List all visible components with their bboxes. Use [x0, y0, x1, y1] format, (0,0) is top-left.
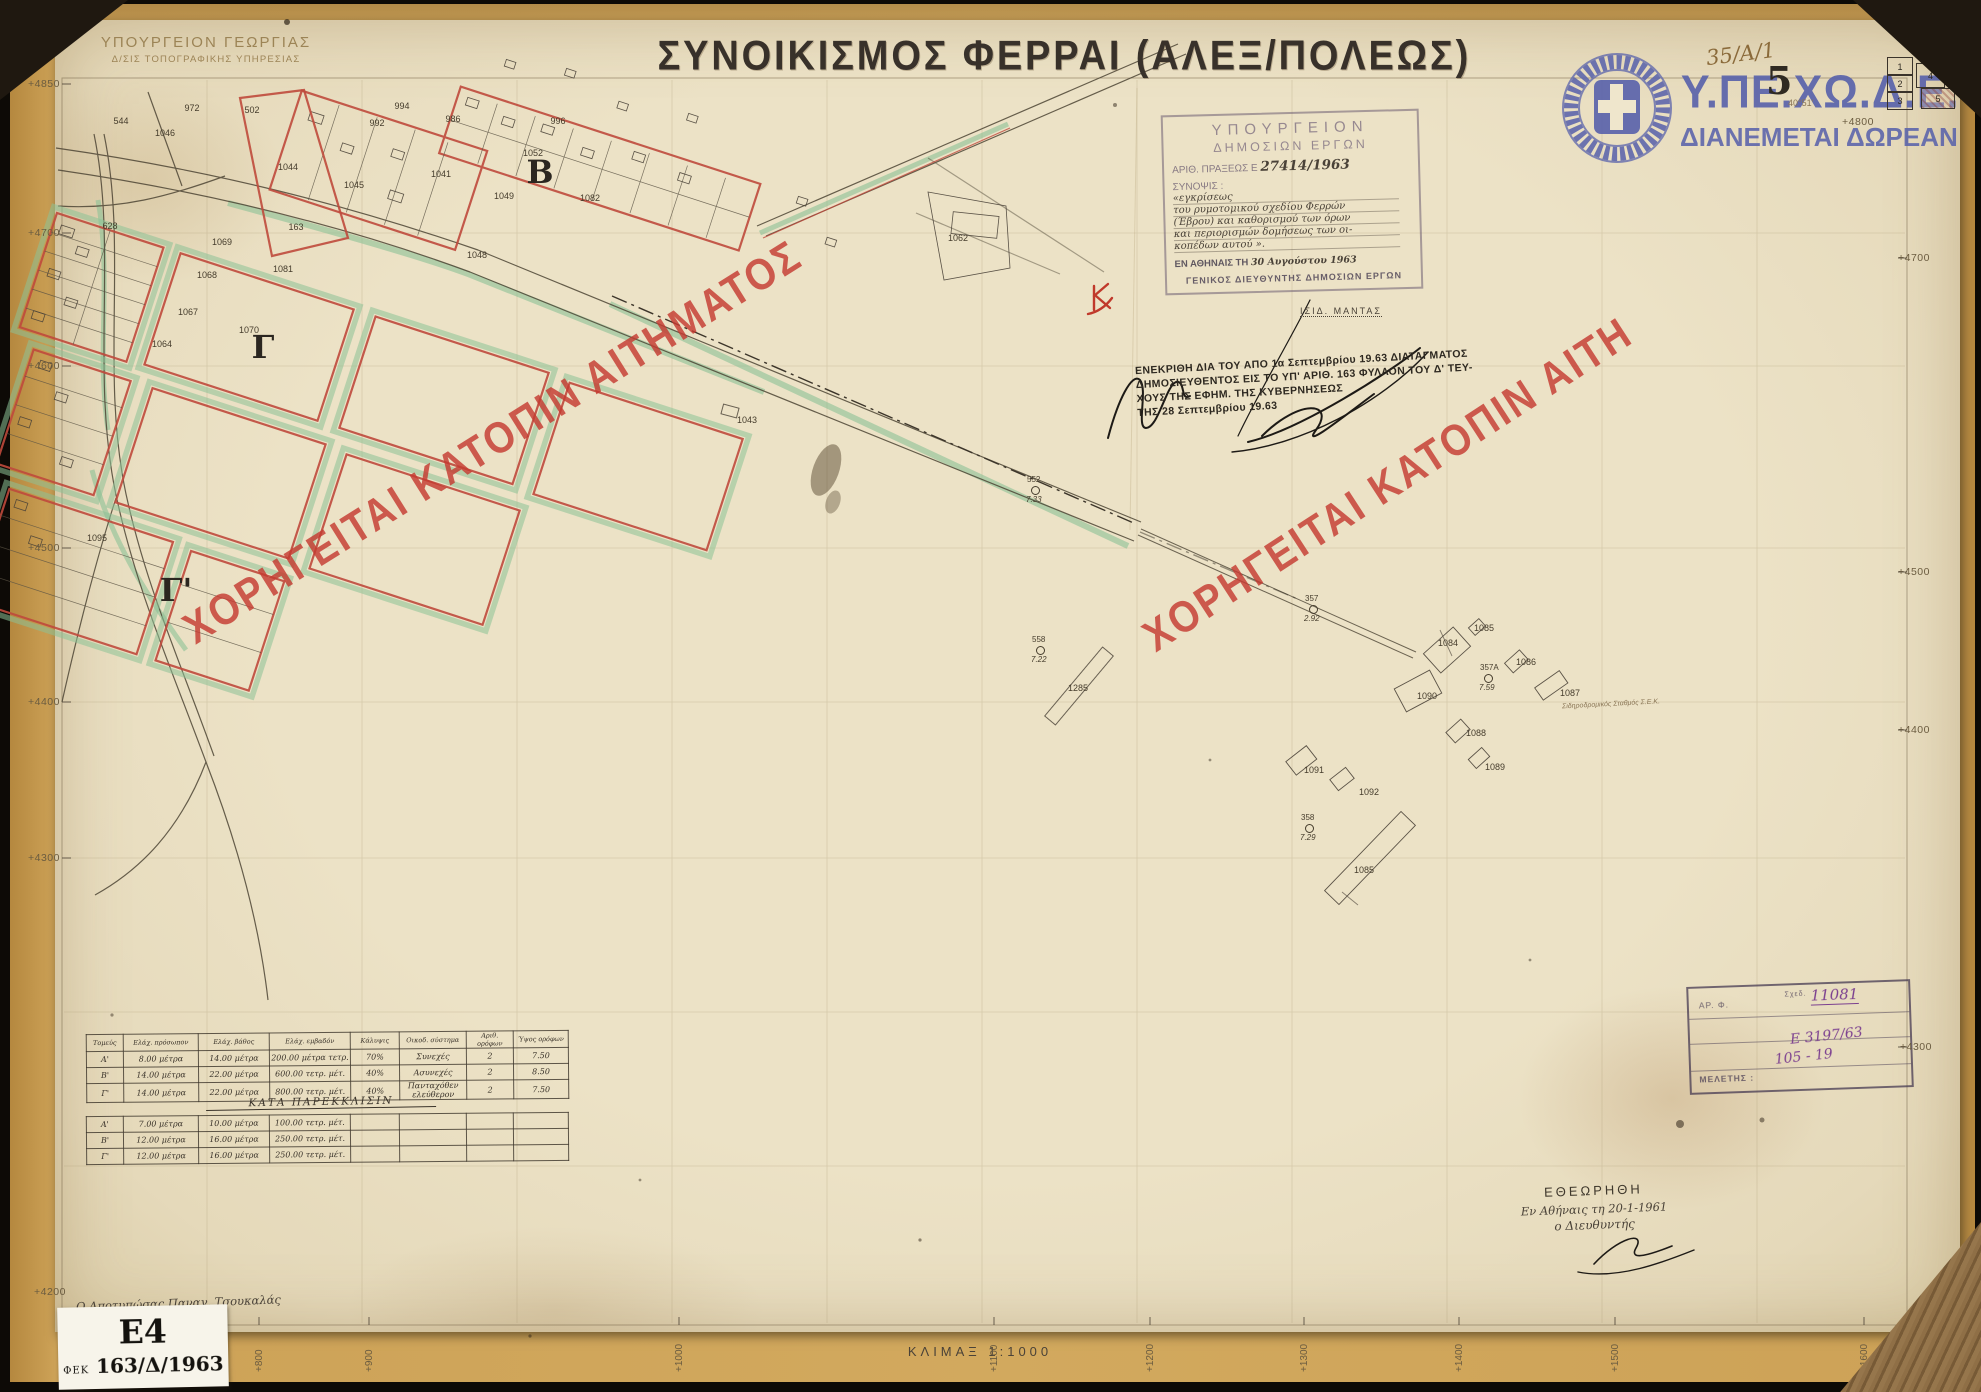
table-cell — [467, 1145, 514, 1161]
table-header-cell: Ελάχ. εμβαδόν — [269, 1032, 350, 1050]
table-cell: 22.00 μέτρα — [198, 1066, 269, 1083]
table-cell: 14.00 μέτρα — [124, 1083, 199, 1103]
control-point-number: 552 — [1027, 475, 1040, 484]
parcel-number: 1082 — [580, 193, 600, 203]
table-header-cell: Ελάχ. πρόσωπον — [123, 1034, 198, 1052]
latitude-note: 40°51' — [1788, 98, 1813, 108]
parcel-number: 1081 — [273, 264, 293, 274]
registry-stamp: ΑΡ. Φ. Σχεδ. ΜΕΛΕΤΗΣ : 11081 Ε 3197/63 1… — [1686, 979, 1914, 1095]
table-cell: 7.50 — [514, 1079, 569, 1098]
parcel-number: 1046 — [155, 128, 175, 138]
registry-pages: 105 - 19 — [1774, 1046, 1834, 1068]
table-cell — [400, 1145, 467, 1162]
table-cell: 70% — [350, 1049, 399, 1065]
table-header-cell: Τομεύς — [86, 1034, 123, 1051]
table-cell: 600.00 τετρ. μέτ. — [269, 1065, 350, 1082]
table-cell: 7.50 — [513, 1047, 568, 1063]
map-scale: ΚΛΙΜΑΞ 1:1000 — [800, 1344, 1160, 1359]
table-cell — [514, 1144, 569, 1160]
registry-study-label: ΜΕΛΕΤΗΣ : — [1699, 1073, 1754, 1085]
table-header-cell: Ύψος ορόφων — [513, 1030, 568, 1047]
parcel-number: 1043 — [737, 415, 757, 425]
parcel-number: 1069 — [212, 237, 232, 247]
control-point-number: 358 — [1301, 813, 1314, 822]
table-cell — [351, 1146, 400, 1162]
table-cell — [513, 1112, 568, 1128]
parcel-number: 1091 — [1304, 765, 1324, 775]
control-point-number: 357Α — [1480, 663, 1499, 672]
parcel-number: 628 — [102, 221, 117, 231]
index-cell-5-current: 5 — [1921, 88, 1955, 109]
table-cell — [466, 1129, 513, 1145]
table-header-cell: Αριθ. ορόφων — [466, 1031, 513, 1048]
control-point-elevation: 2.92 — [1304, 614, 1320, 623]
block-letter: Γ' — [160, 571, 193, 609]
grid-label: +4700 — [28, 227, 60, 239]
table-cell: 12.00 μέτρα — [123, 1132, 198, 1149]
fek-number-row: ΦΕΚ 163/Δ/1963 — [58, 1351, 228, 1379]
table-cell — [350, 1114, 399, 1130]
control-point-marker — [1031, 486, 1040, 495]
signatory-name: ΙΣΙΔ. ΜΑΝΤΑΣ — [1300, 306, 1382, 317]
table-cell: 16.00 μέτρα — [198, 1131, 269, 1148]
table-cell: 8.50 — [513, 1063, 568, 1079]
grid-label: +4500 — [28, 542, 60, 554]
control-point-marker — [1036, 646, 1045, 655]
table-cell: 12.00 μέτρα — [124, 1148, 199, 1165]
index-cell-3: 3 — [1887, 91, 1913, 110]
grid-label: +4500 — [1898, 566, 1930, 578]
stamp-act-number: 27414/1963 — [1260, 156, 1350, 174]
scanned-map-photo: ΥΠΟΥΡΓΕΙΟΝ ΓΕΩΡΓΙΑΣ Δ/ΣΙΣ ΤΟΠΟΓΡΑΦΙΚΗΣ Υ… — [0, 0, 1981, 1392]
table-cell: 8.00 μέτρα — [123, 1051, 198, 1068]
review-block: ΕΘΕΩΡΗΘΗ Εν Αθήναις τη 20-1-1961 ο Διευθ… — [1493, 1180, 1695, 1236]
grid-label: +4600 — [28, 360, 60, 372]
control-point-marker — [1305, 824, 1314, 833]
table-cell — [399, 1113, 466, 1130]
grid-label: +1100 — [989, 1345, 1000, 1372]
table-cell: 7.00 μέτρα — [123, 1116, 198, 1133]
grid-label: +4700 — [1898, 252, 1930, 264]
fek-number: 163/Δ/1963 — [96, 1351, 224, 1378]
building-terms-table: ΤομεύςΕλάχ. πρόσωπονΕλάχ. βάθοςΕλάχ. εμβ… — [86, 1030, 570, 1103]
table-cell: 14.00 μέτρα — [123, 1067, 198, 1084]
table-cell: Α' — [86, 1116, 123, 1132]
table-cell: 10.00 μέτρα — [198, 1115, 269, 1132]
grid-label: +4200 — [34, 1286, 66, 1298]
table-cell: 16.00 μέτρα — [199, 1147, 270, 1164]
parcel-number: 1048 — [467, 250, 487, 260]
stamp-director-title: ΓΕΝΙΚΟΣ ΔΙΕΥΘΥΝΤΗΣ ΔΗΜΟΣΙΩΝ ΕΡΓΩΝ — [1175, 270, 1413, 286]
parcel-number: 1064 — [152, 339, 172, 349]
parcel-number: 1087 — [1560, 688, 1580, 698]
registry-file-label: ΑΡ. Φ. — [1699, 999, 1729, 1010]
parcel-number: 1044 — [278, 162, 298, 172]
table-header-cell: Ελάχ. βάθος — [198, 1033, 269, 1051]
parcel-number: 1062 — [948, 233, 968, 243]
grid-label: +1400 — [1454, 1344, 1465, 1372]
grid-label: +4800 — [1842, 116, 1874, 128]
registry-faint-label: Σχεδ. — [1784, 991, 1806, 999]
table-header-cell: Κάλυψις — [350, 1032, 399, 1049]
grid-label: +4850 — [28, 78, 60, 90]
sheet-number: 5 — [1766, 58, 1792, 103]
grid-label: +1200 — [1145, 1344, 1156, 1372]
table-cell: 250.00 τετρ. μέτ. — [269, 1130, 350, 1147]
public-works-approval-stamp: ΥΠΟΥΡΓΕΙΟΝ ΔΗΜΟΣΙΩΝ ΕΡΓΩΝ ΑΡΙΘ. ΠΡΑΞΕΩΣ … — [1161, 109, 1424, 296]
parcel-number: 1095 — [87, 533, 107, 543]
parcel-number: 1089 — [1485, 762, 1505, 772]
parcel-number: 1088 — [1466, 728, 1486, 738]
parcel-number: 972 — [184, 103, 199, 113]
table-cell — [350, 1130, 399, 1146]
table-cell: Συνεχές — [399, 1048, 466, 1065]
derogation-table: Α'7.00 μέτρα10.00 μέτρα100.00 τετρ. μέτ.… — [86, 1112, 569, 1165]
parcel-number: 1085 — [1354, 865, 1374, 875]
distributed-free-text: ΔΙΑΝΕΜΕΤΑΙ ΔΩΡΕΑΝ — [1680, 122, 1958, 153]
control-point-elevation: 7.22 — [1031, 655, 1047, 664]
table-cell: Γ' — [87, 1148, 124, 1164]
table-cell: Γ' — [87, 1083, 124, 1102]
table-cell — [399, 1129, 466, 1146]
parcel-number: 996 — [550, 116, 565, 126]
issuing-ministry: ΥΠΟΥΡΓΕΙΟΝ ΓΕΩΡΓΙΑΣ Δ/ΣΙΣ ΤΟΠΟΓΡΑΦΙΚΗΣ Υ… — [88, 34, 324, 65]
table-cell — [513, 1128, 568, 1144]
table-cell — [466, 1113, 513, 1129]
parcel-number: 1285 — [1068, 683, 1088, 693]
stamp-act-number-row: ΑΡΙΘ. ΠΡΑΞΕΩΣ Ε 27414/1963 — [1172, 155, 1410, 177]
plan-code: Ε4 — [57, 1310, 228, 1353]
grid-label: +1500 — [1610, 1344, 1621, 1372]
parcel-number: 994 — [394, 101, 409, 111]
ministry-name: ΥΠΟΥΡΓΕΙΟΝ ΓΕΩΡΓΙΑΣ — [88, 34, 324, 51]
stamp-date: 30 Αυγούστου 1963 — [1251, 254, 1357, 268]
fek-reference-label: Ε4 ΦΕΚ 163/Δ/1963 — [57, 1304, 229, 1390]
control-point-elevation: 7.33 — [1026, 495, 1042, 504]
grid-label: +4400 — [28, 696, 60, 708]
parcel-number: 502 — [244, 105, 259, 115]
control-point-marker — [1309, 605, 1318, 614]
control-point-marker — [1484, 674, 1493, 683]
table-cell: Ασυνεχές — [399, 1064, 466, 1081]
table-cell: Β' — [87, 1067, 124, 1083]
table-cell: 250.00 τετρ. μέτ. — [270, 1146, 351, 1163]
table-cell: 2 — [466, 1064, 513, 1080]
parcel-number: 1068 — [197, 270, 217, 280]
control-point-elevation: 7.59 — [1479, 683, 1495, 692]
block-letter: Β — [526, 153, 553, 191]
ministry-directorate: Δ/ΣΙΣ ΤΟΠΟΓΡΑΦΙΚΗΣ ΥΠΗΡΕΣΙΑΣ — [88, 54, 324, 65]
parcel-number: 1084 — [1438, 638, 1458, 648]
parcel-number: 1041 — [431, 169, 451, 179]
grid-label: +900 — [364, 1349, 375, 1372]
registry-ref: Ε 3197/63 — [1789, 1024, 1863, 1048]
parcel-number: 1090 — [1417, 691, 1437, 701]
grid-label: +800 — [254, 1349, 265, 1372]
block-letter: Γ — [252, 328, 275, 366]
stamp-date-row: ΕΝ ΑΘΗΝΑΙΣ ΤΗ 30 Αυγούστου 1963 — [1174, 253, 1412, 270]
fek-prefix: ΦΕΚ — [63, 1365, 89, 1377]
grid-label: +4300 — [28, 852, 60, 864]
table-cell: Α' — [86, 1051, 123, 1067]
parcel-number: 1067 — [178, 307, 198, 317]
table-cell: Β' — [86, 1132, 123, 1148]
map-title: ΣΥΝΟΙΚΙΣΜΟΣ ΦΕΡΡΑΙ (ΑΛΕΞ/ΠΟΛΕΩΣ) — [658, 33, 1323, 80]
parcel-number: 163 — [288, 222, 303, 232]
stamp-summary: «εγκρίσεωςτου ρυμοτομικού σχεδίου Φερρών… — [1173, 187, 1412, 253]
parcel-number: 1045 — [344, 180, 364, 190]
control-point-number: 357 — [1305, 594, 1318, 603]
table-cell: 2 — [466, 1048, 513, 1064]
grid-label: +1000 — [674, 1344, 685, 1372]
parcel-number: 1092 — [1359, 787, 1379, 797]
grid-label: +1300 — [1299, 1344, 1310, 1372]
control-point-elevation: 7.29 — [1300, 833, 1316, 842]
parcel-number: 1049 — [494, 191, 514, 201]
table-cell: 100.00 τετρ. μέτ. — [269, 1114, 350, 1131]
control-point-number: 558 — [1032, 635, 1045, 644]
grid-label: +4300 — [1900, 1041, 1932, 1053]
table-cell: 14.00 μέτρα — [198, 1050, 269, 1067]
parcel-number: 992 — [369, 118, 384, 128]
table-header-cell: Οικοδ. σύστημα — [399, 1031, 466, 1049]
table-cell: 40% — [350, 1065, 399, 1081]
table-cell: 200.00 μέτρα τετρ. — [269, 1049, 350, 1066]
parcel-number: 544 — [113, 116, 128, 126]
parcel-number: 1085 — [1474, 623, 1494, 633]
table-cell: 2 — [467, 1080, 514, 1099]
parcel-number: 986 — [445, 114, 460, 124]
grid-label: +4400 — [1898, 724, 1930, 736]
registry-number: 11081 — [1810, 985, 1858, 1006]
parcel-number: 1086 — [1516, 657, 1536, 667]
